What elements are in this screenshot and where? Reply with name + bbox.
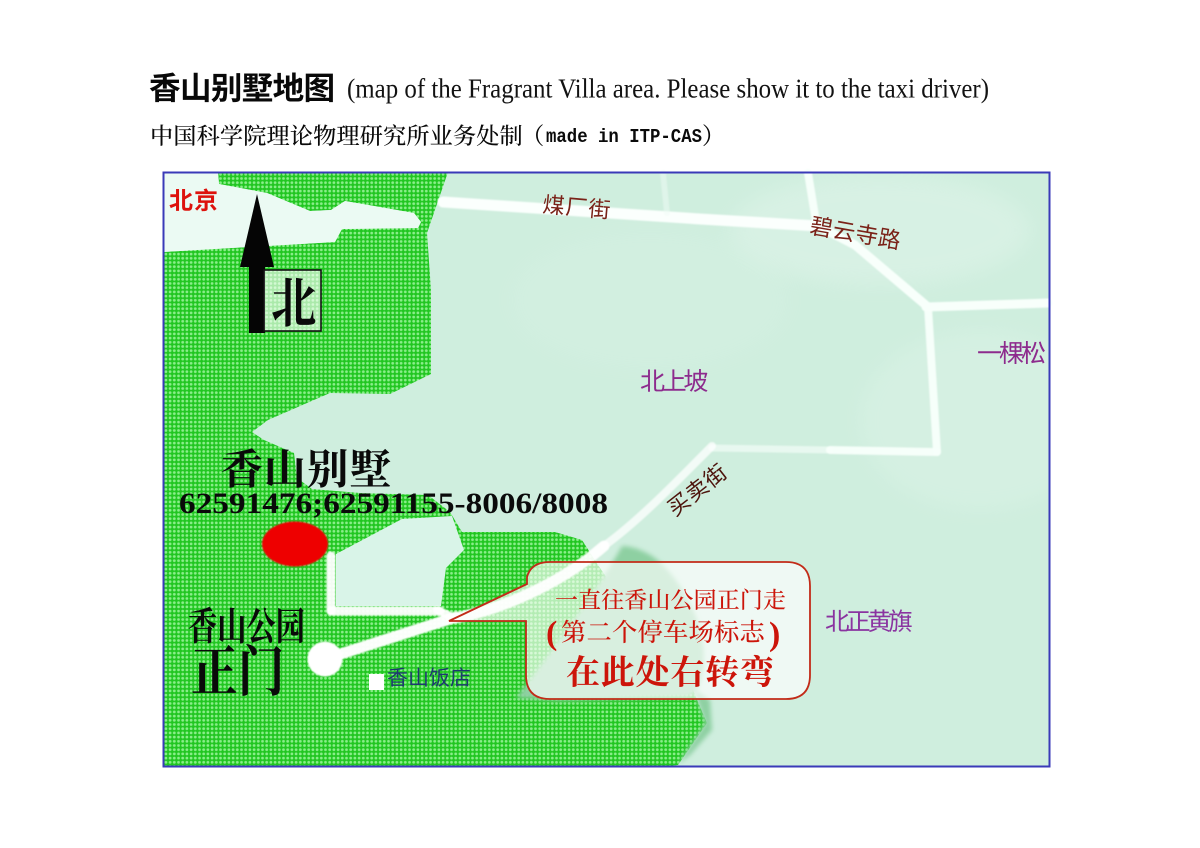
svg-text:(map of the Fragrant Villa are: (map of the Fragrant Villa area. Please … [347,74,989,104]
svg-text:(: ( [546,615,557,652]
svg-text:62591476;62591155-8006/8008: 62591476;62591155-8006/8008 [179,487,608,520]
svg-text:): ) [769,616,780,653]
svg-text:made in ITP-CAS: made in ITP-CAS [546,126,702,148]
